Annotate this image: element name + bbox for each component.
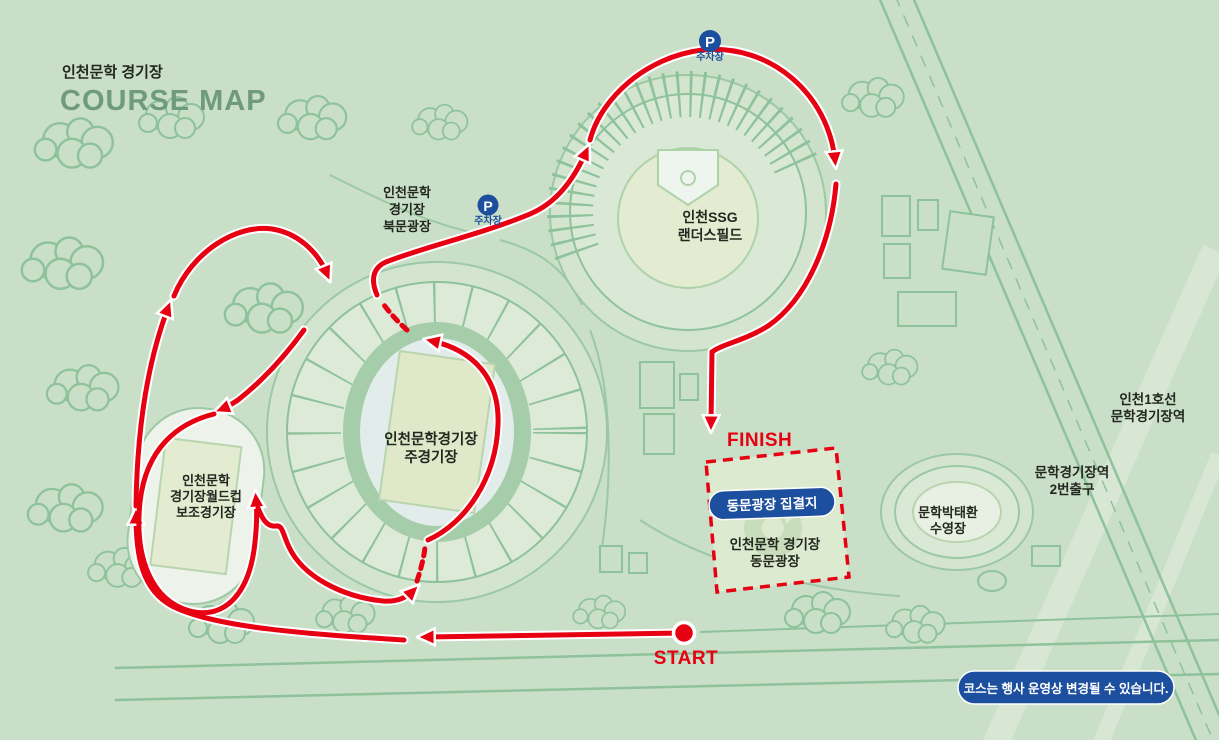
svg-text:2번출구: 2번출구 — [1050, 481, 1095, 497]
finish-label: FINISH — [727, 430, 792, 451]
map-canvas: P 주차장 P 주차장 인천문학 경기장 COURSE MAP 인천문학 경기장… — [0, 0, 1219, 740]
notice-badge: 코스는 행사 운영상 변경될 수 있습니다. — [958, 671, 1174, 704]
svg-text:경기장: 경기장 — [389, 202, 425, 217]
parking-p-icon: P — [705, 34, 715, 51]
svg-text:주경기장: 주경기장 — [404, 448, 458, 466]
svg-text:랜더스필드: 랜더스필드 — [678, 227, 743, 243]
parking-label: 주차장 — [696, 50, 724, 63]
assembly-badge-text: 동문광장 집결지 — [726, 494, 817, 513]
svg-text:수영장: 수영장 — [930, 521, 966, 536]
course-map-poster: P 주차장 P 주차장 인천문학 경기장 COURSE MAP 인천문학 경기장… — [0, 0, 1219, 740]
label-ssg-field: 인천SSG — [682, 209, 737, 225]
label-east-plaza: 인천문학 경기장 — [730, 536, 821, 552]
map-title-kr: 인천문학 경기장 — [62, 63, 163, 81]
svg-text:경기장월드컵: 경기장월드컵 — [170, 489, 242, 504]
parking-label: 주차장 — [474, 214, 502, 227]
label-north-plaza: 인천문학 — [383, 185, 431, 200]
label-exit: 문학경기장역 — [1035, 464, 1110, 480]
start-label: START — [654, 648, 718, 669]
label-pool: 문학박태환 — [918, 505, 978, 520]
svg-text:문학경기장역: 문학경기장역 — [1111, 408, 1186, 424]
label-subway: 인천1호선 — [1119, 391, 1176, 407]
svg-text:동문광장: 동문광장 — [750, 553, 800, 569]
map-title-en: COURSE MAP — [60, 85, 267, 117]
parking-p-icon: P — [483, 198, 492, 214]
svg-text:보조경기장: 보조경기장 — [176, 505, 236, 520]
label-aux-stadium: 인천문학 — [182, 473, 230, 488]
notice-badge-text: 코스는 행사 운영상 변경될 수 있습니다. — [964, 681, 1169, 696]
label-main-stadium: 인천문학경기장 — [384, 430, 478, 448]
svg-text:북문광장: 북문광장 — [383, 219, 431, 234]
start-dot — [674, 623, 695, 644]
assembly-badge: 동문광장 집결지 — [709, 487, 836, 520]
